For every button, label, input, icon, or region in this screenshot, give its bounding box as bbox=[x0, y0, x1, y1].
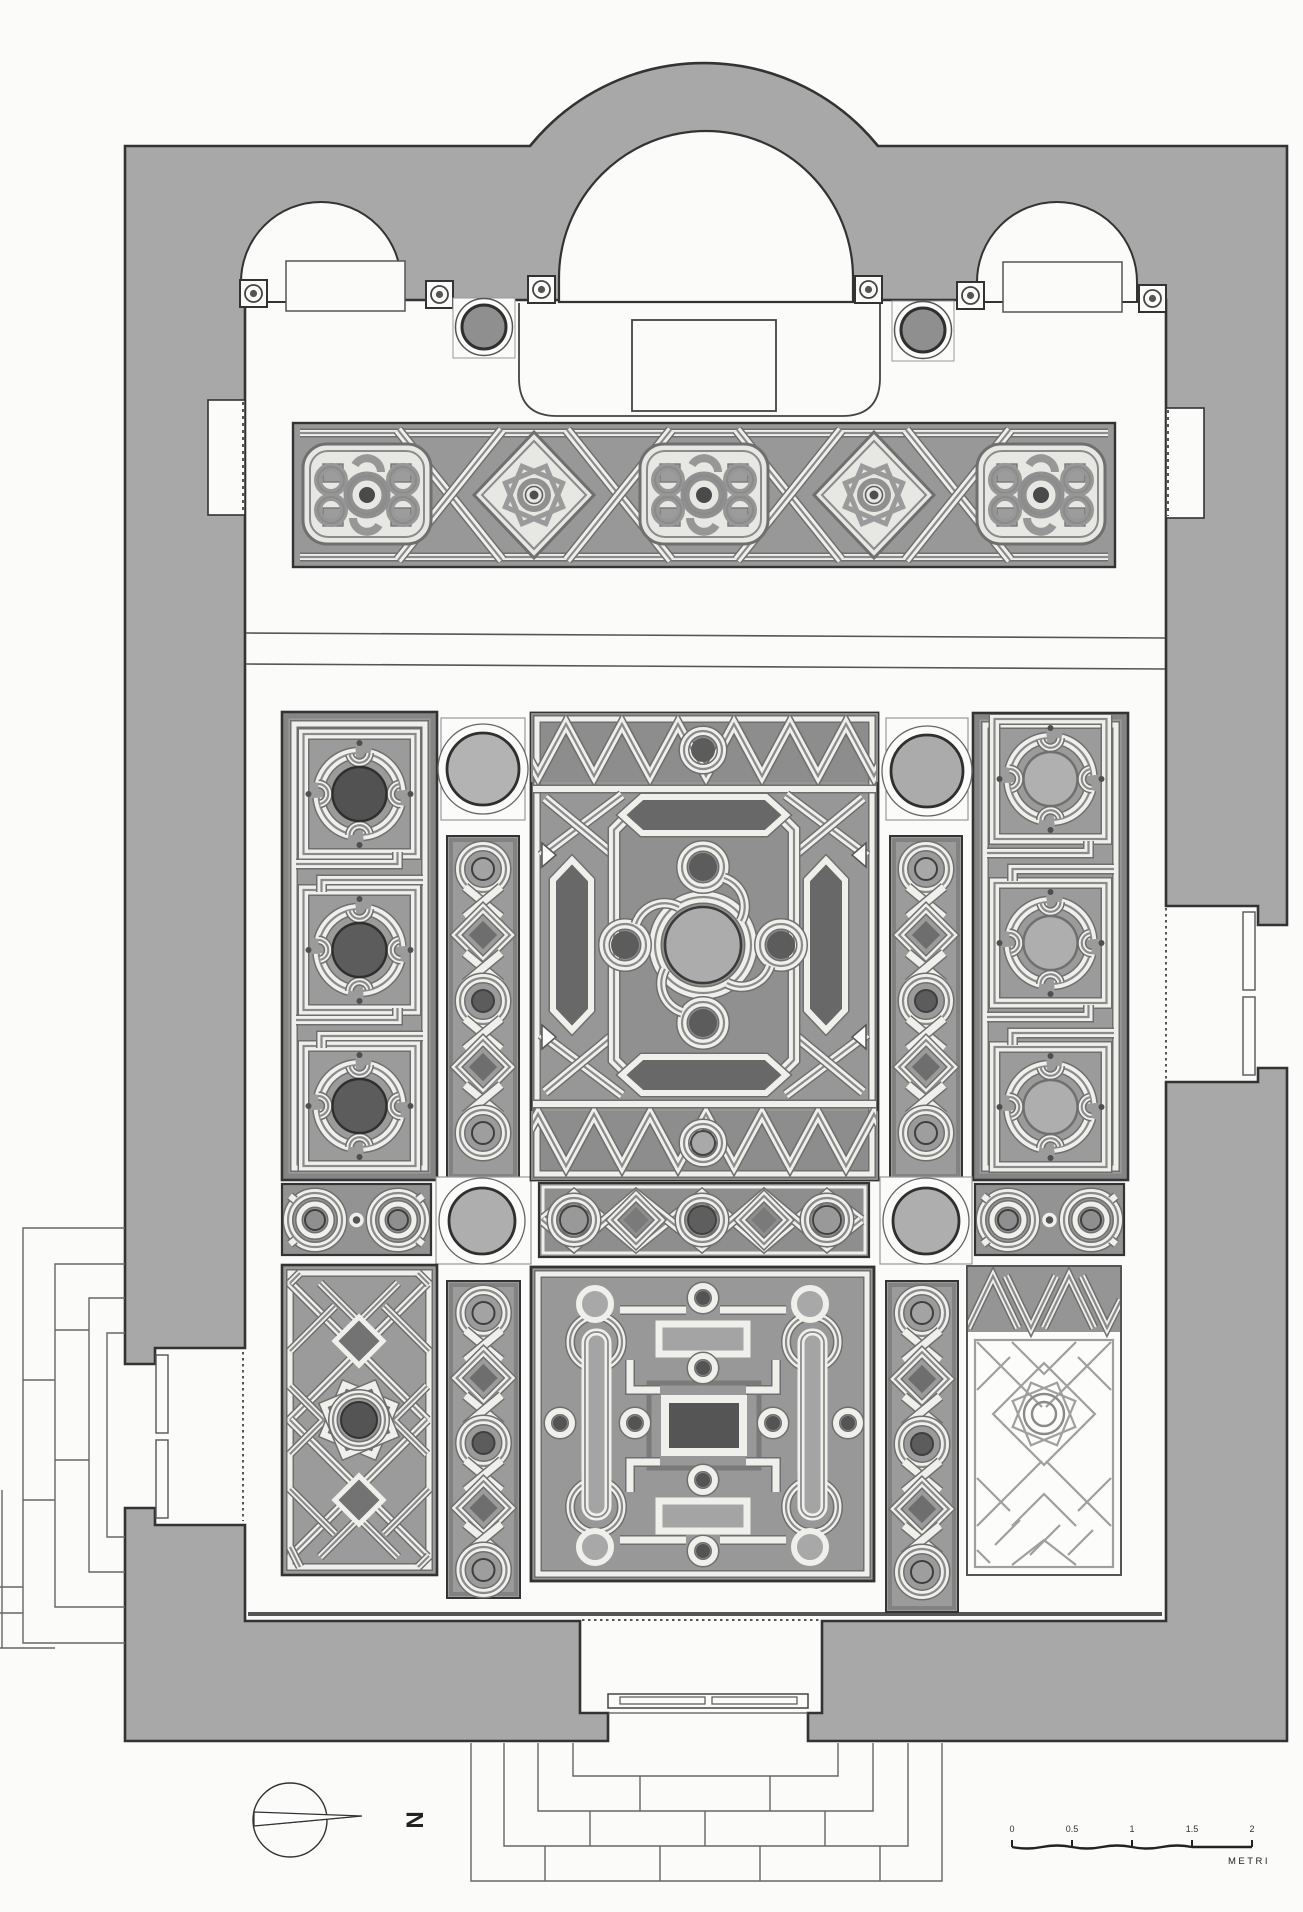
svg-text:1: 1 bbox=[1129, 1824, 1134, 1834]
svg-text:0: 0 bbox=[1009, 1824, 1014, 1834]
svg-text:N: N bbox=[402, 1811, 429, 1828]
svg-text:METRI: METRI bbox=[1228, 1856, 1270, 1867]
svg-text:2: 2 bbox=[1249, 1824, 1254, 1834]
svg-text:1.5: 1.5 bbox=[1186, 1824, 1199, 1834]
svg-text:0.5: 0.5 bbox=[1066, 1824, 1079, 1834]
